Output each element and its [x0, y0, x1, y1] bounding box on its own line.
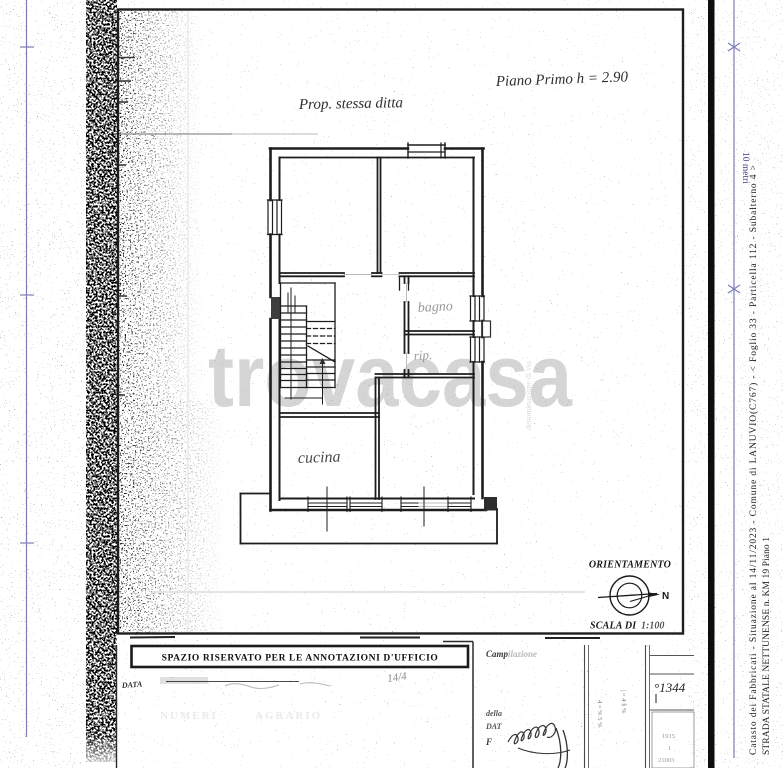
svg-text:bagno: bagno: [417, 299, 453, 316]
svg-text:denominazione di via: denominazione di via: [524, 361, 533, 430]
svg-text:| = 4 § %: | = 4 § %: [620, 690, 627, 714]
svg-text:SCALA DI: SCALA DI: [590, 621, 637, 632]
svg-text:trovacasa: trovacasa: [208, 326, 573, 425]
svg-text:Catasto dei Fabbricati - Situa: Catasto dei Fabbricati - Situazione al 1…: [748, 165, 759, 755]
svg-text:DATA: DATA: [121, 680, 144, 691]
svg-text:NUMERI: NUMERI: [160, 710, 218, 722]
svg-text:STRADA STATALE NETTUNENSE n. K: STRADA STATALE NETTUNENSE n. KM 19 Piano…: [762, 537, 772, 755]
svg-text:1:100: 1:100: [641, 621, 664, 632]
svg-text:1: 1: [668, 745, 671, 752]
svg-text:della: della: [486, 709, 502, 718]
svg-text:N: N: [662, 591, 669, 602]
svg-text:Campilazione: Campilazione: [486, 649, 537, 659]
svg-text:rip.: rip.: [413, 347, 432, 363]
svg-text:cucina: cucina: [298, 449, 341, 467]
svg-text:DAT: DAT: [485, 722, 503, 731]
svg-text:F: F: [485, 737, 492, 747]
svg-text:21003: 21003: [658, 757, 674, 764]
svg-text:°1344: °1344: [654, 680, 686, 695]
svg-text:SPAZIO RISERVATO PER LE ANNOTA: SPAZIO RISERVATO PER LE ANNOTAZIONI D'UF…: [162, 654, 439, 664]
svg-text:Prop. stessa ditta: Prop. stessa ditta: [298, 95, 403, 113]
svg-text:1915: 1915: [662, 733, 675, 740]
svg-text:4 = % 5 %: 4 = % 5 %: [596, 700, 603, 728]
svg-text:ORIENTAMENTO: ORIENTAMENTO: [589, 560, 671, 571]
svg-text:AGRARIO: AGRARIO: [255, 710, 322, 722]
